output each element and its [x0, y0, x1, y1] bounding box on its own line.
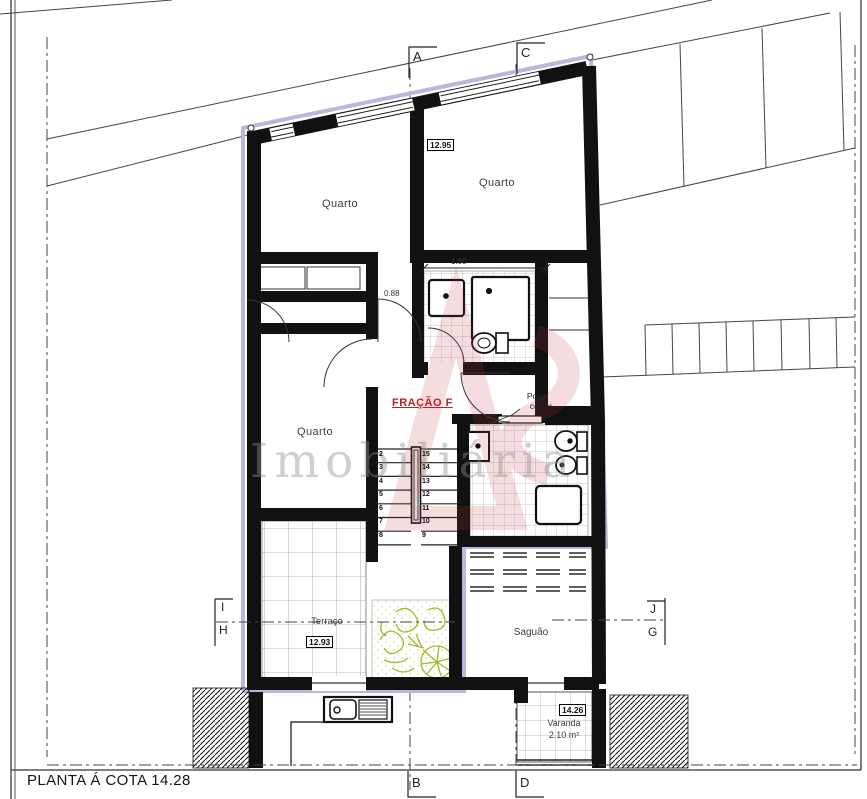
level-box-varanda: 14.26: [559, 704, 586, 716]
fraction-label: FRAÇÃO F: [392, 397, 453, 409]
terraco-floor: [262, 521, 366, 682]
section-marker-a: A: [413, 49, 422, 64]
drawing-title: PLANTA Á COTA 14.28: [27, 772, 191, 789]
level-box-terraco: 12.93: [306, 636, 333, 648]
room-label-saguao: Saguão: [501, 627, 561, 638]
level-box-top: 12.95: [427, 139, 454, 151]
stair-number: 7: [379, 518, 383, 525]
stair-number: 8: [379, 532, 383, 539]
sliding-door-label-1: Porta: [514, 391, 560, 401]
floor-plan-canvas: Imobiliária Quarto Quarto Quarto Terraço…: [0, 0, 867, 799]
section-marker-c: C: [521, 45, 530, 60]
room-label-terraco: Terraço: [297, 616, 357, 627]
stair-number: 3: [379, 464, 383, 471]
section-marker-h: H: [219, 623, 228, 637]
dim-door-width: 0.88: [384, 289, 400, 298]
stair-number: 13: [422, 478, 430, 485]
stair-number: 10: [422, 518, 430, 525]
stair-number: 6: [379, 505, 383, 512]
varanda-floor: [517, 692, 592, 765]
stair-number: 15: [422, 451, 430, 458]
sliding-door-label-2: correr: [518, 401, 564, 411]
stair-number: 14: [422, 464, 430, 471]
section-marker-g: G: [648, 625, 657, 639]
section-marker-b: B: [412, 775, 421, 790]
kitchen-sink: [291, 697, 392, 766]
varanda-area-label: 2.10 m²: [536, 730, 592, 740]
saguao-floor: [464, 547, 592, 687]
section-marker-j: J: [650, 602, 656, 616]
room-label-quarto-top-right: Quarto: [457, 177, 537, 189]
stair-number: 4: [379, 478, 383, 485]
stair-number: 12: [422, 491, 430, 498]
section-marker-i: I: [221, 600, 224, 614]
watermark-text: Imobiliária: [250, 434, 576, 489]
stair-number: 5: [379, 491, 383, 498]
stair-number: 11: [422, 505, 429, 512]
hatched-areas: [193, 688, 688, 768]
section-marker-d: D: [520, 775, 529, 790]
garden-patch: [372, 600, 453, 683]
dim-bath-width: 1.80: [451, 257, 467, 266]
neighbor-cell-strip: [602, 317, 855, 377]
stair-number: 2: [379, 451, 383, 458]
room-label-varanda: Varanda: [536, 718, 592, 728]
room-label-quarto-top-left: Quarto: [300, 198, 380, 210]
stair-number: 9: [422, 532, 426, 539]
room-label-quarto-mid: Quarto: [275, 426, 355, 438]
